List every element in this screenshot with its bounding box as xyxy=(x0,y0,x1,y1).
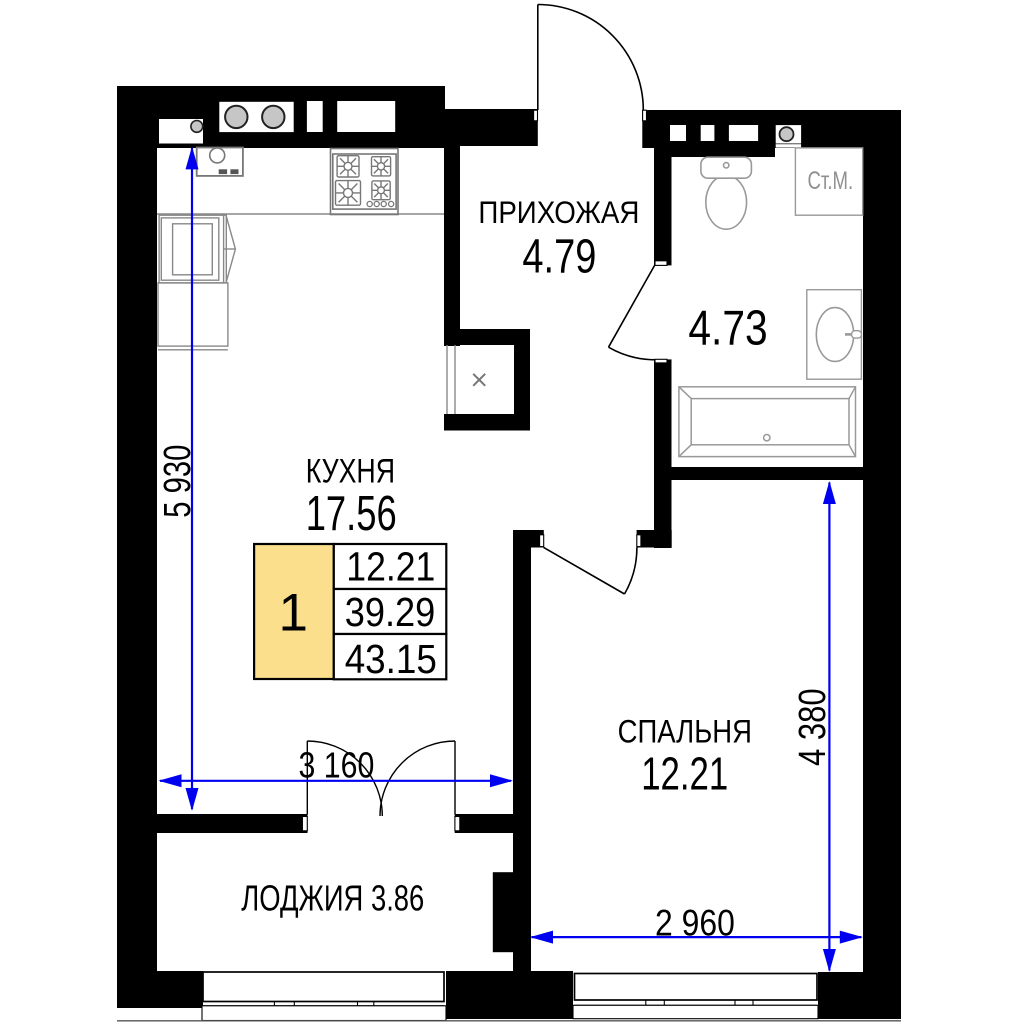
svg-text:39.29: 39.29 xyxy=(345,589,436,635)
svg-text:ЛОДЖИЯ 3.86: ЛОДЖИЯ 3.86 xyxy=(241,878,424,919)
svg-text:4.79: 4.79 xyxy=(522,230,596,283)
svg-text:СПАЛЬНЯ: СПАЛЬНЯ xyxy=(618,713,752,749)
svg-text:3 160: 3 160 xyxy=(299,744,375,785)
svg-text:КУХНЯ: КУХНЯ xyxy=(306,452,395,490)
svg-text:43.15: 43.15 xyxy=(345,636,437,682)
svg-text:4.73: 4.73 xyxy=(688,302,767,356)
svg-text:4 380: 4 380 xyxy=(792,688,834,766)
svg-text:Ст.М.: Ст.М. xyxy=(807,167,853,195)
svg-text:17.56: 17.56 xyxy=(306,487,397,541)
svg-text:12.21: 12.21 xyxy=(641,748,728,800)
svg-text:ПРИХОЖАЯ: ПРИХОЖАЯ xyxy=(478,194,639,230)
svg-text:5 930: 5 930 xyxy=(157,445,199,518)
svg-text:2 960: 2 960 xyxy=(655,902,735,943)
svg-text:12.21: 12.21 xyxy=(346,544,435,590)
svg-text:1: 1 xyxy=(278,584,307,643)
